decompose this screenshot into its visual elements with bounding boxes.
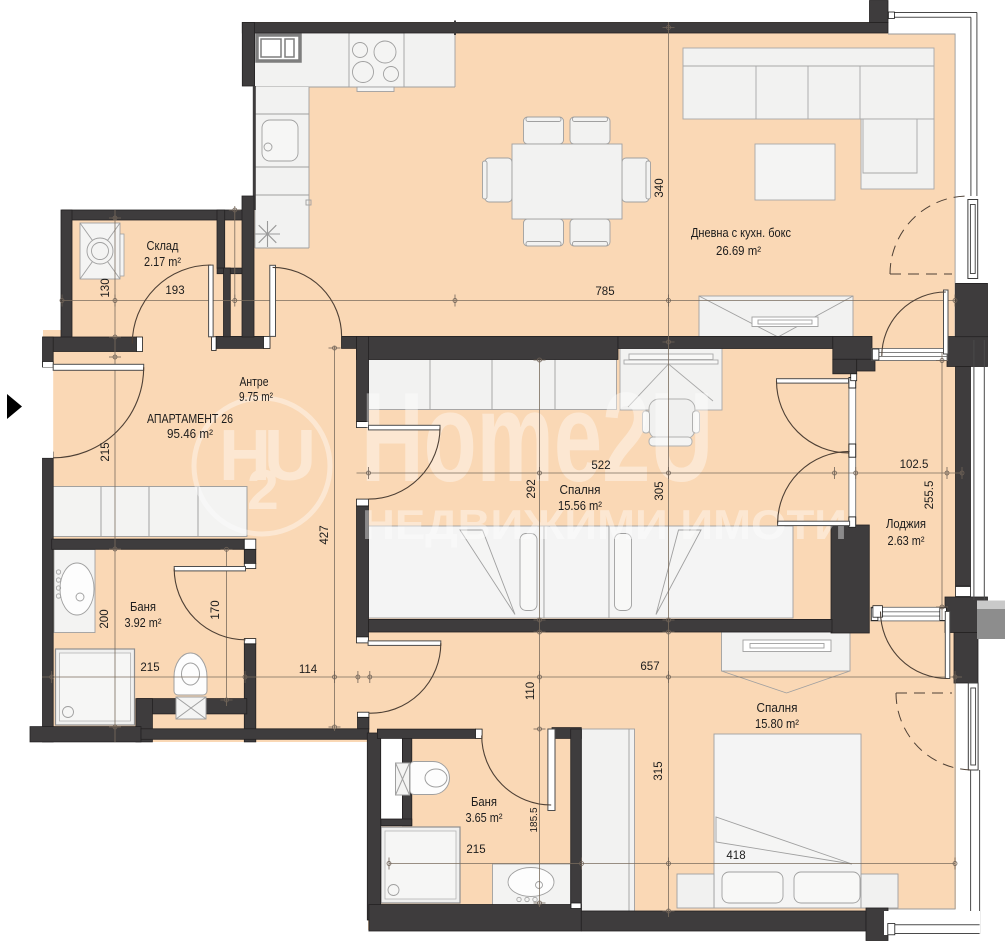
svg-text:110: 110: [525, 682, 537, 700]
svg-text:215: 215: [466, 844, 485, 856]
svg-text:215: 215: [100, 442, 112, 461]
svg-text:9.75 m²: 9.75 m²: [239, 390, 273, 404]
svg-text:255.5: 255.5: [924, 481, 936, 510]
svg-text:427: 427: [319, 525, 331, 544]
svg-text:102.5: 102.5: [900, 459, 929, 471]
svg-text:Спалня: Спалня: [757, 701, 798, 715]
svg-text:315: 315: [653, 761, 665, 780]
svg-text:200: 200: [99, 609, 111, 628]
svg-text:305: 305: [654, 481, 666, 500]
svg-text:Баня: Баня: [130, 600, 156, 614]
svg-text:АПАРТАМЕНТ 26: АПАРТАМЕНТ 26: [147, 412, 233, 426]
svg-text:Спалня: Спалня: [560, 483, 601, 497]
svg-text:Склад: Склад: [147, 239, 180, 253]
svg-text:114: 114: [299, 664, 318, 676]
svg-text:95.46 m²: 95.46 m²: [167, 427, 213, 441]
svg-text:26.69 m²: 26.69 m²: [716, 244, 761, 258]
svg-text:2: 2: [247, 458, 279, 522]
svg-text:Антре: Антре: [240, 375, 269, 389]
svg-text:15.56 m²: 15.56 m²: [558, 499, 602, 513]
svg-text:2.17 m²: 2.17 m²: [144, 255, 181, 269]
svg-text:785: 785: [595, 286, 614, 298]
svg-text:340: 340: [654, 178, 666, 197]
svg-text:3.92 m²: 3.92 m²: [125, 616, 162, 630]
svg-text:15.80 m²: 15.80 m²: [755, 717, 799, 731]
svg-text:185.5: 185.5: [529, 807, 540, 832]
svg-text:Баня: Баня: [471, 795, 497, 809]
svg-text:418: 418: [726, 850, 745, 862]
svg-text:170: 170: [210, 600, 222, 619]
svg-text:215: 215: [140, 662, 159, 674]
svg-text:3.65 m²: 3.65 m²: [466, 811, 503, 825]
svg-text:522: 522: [591, 460, 610, 472]
svg-text:657: 657: [640, 661, 659, 673]
svg-text:2.63 m²: 2.63 m²: [888, 534, 925, 548]
svg-text:193: 193: [165, 285, 184, 297]
svg-text:130: 130: [100, 278, 112, 297]
svg-text:НЕДВИЖИМИ ИМОТИ: НЕДВИЖИМИ ИМОТИ: [362, 501, 847, 548]
svg-text:292: 292: [526, 479, 538, 498]
svg-text:Дневна с кухн. бокс: Дневна с кухн. бокс: [691, 226, 791, 240]
svg-text:Лоджия: Лоджия: [886, 517, 926, 531]
